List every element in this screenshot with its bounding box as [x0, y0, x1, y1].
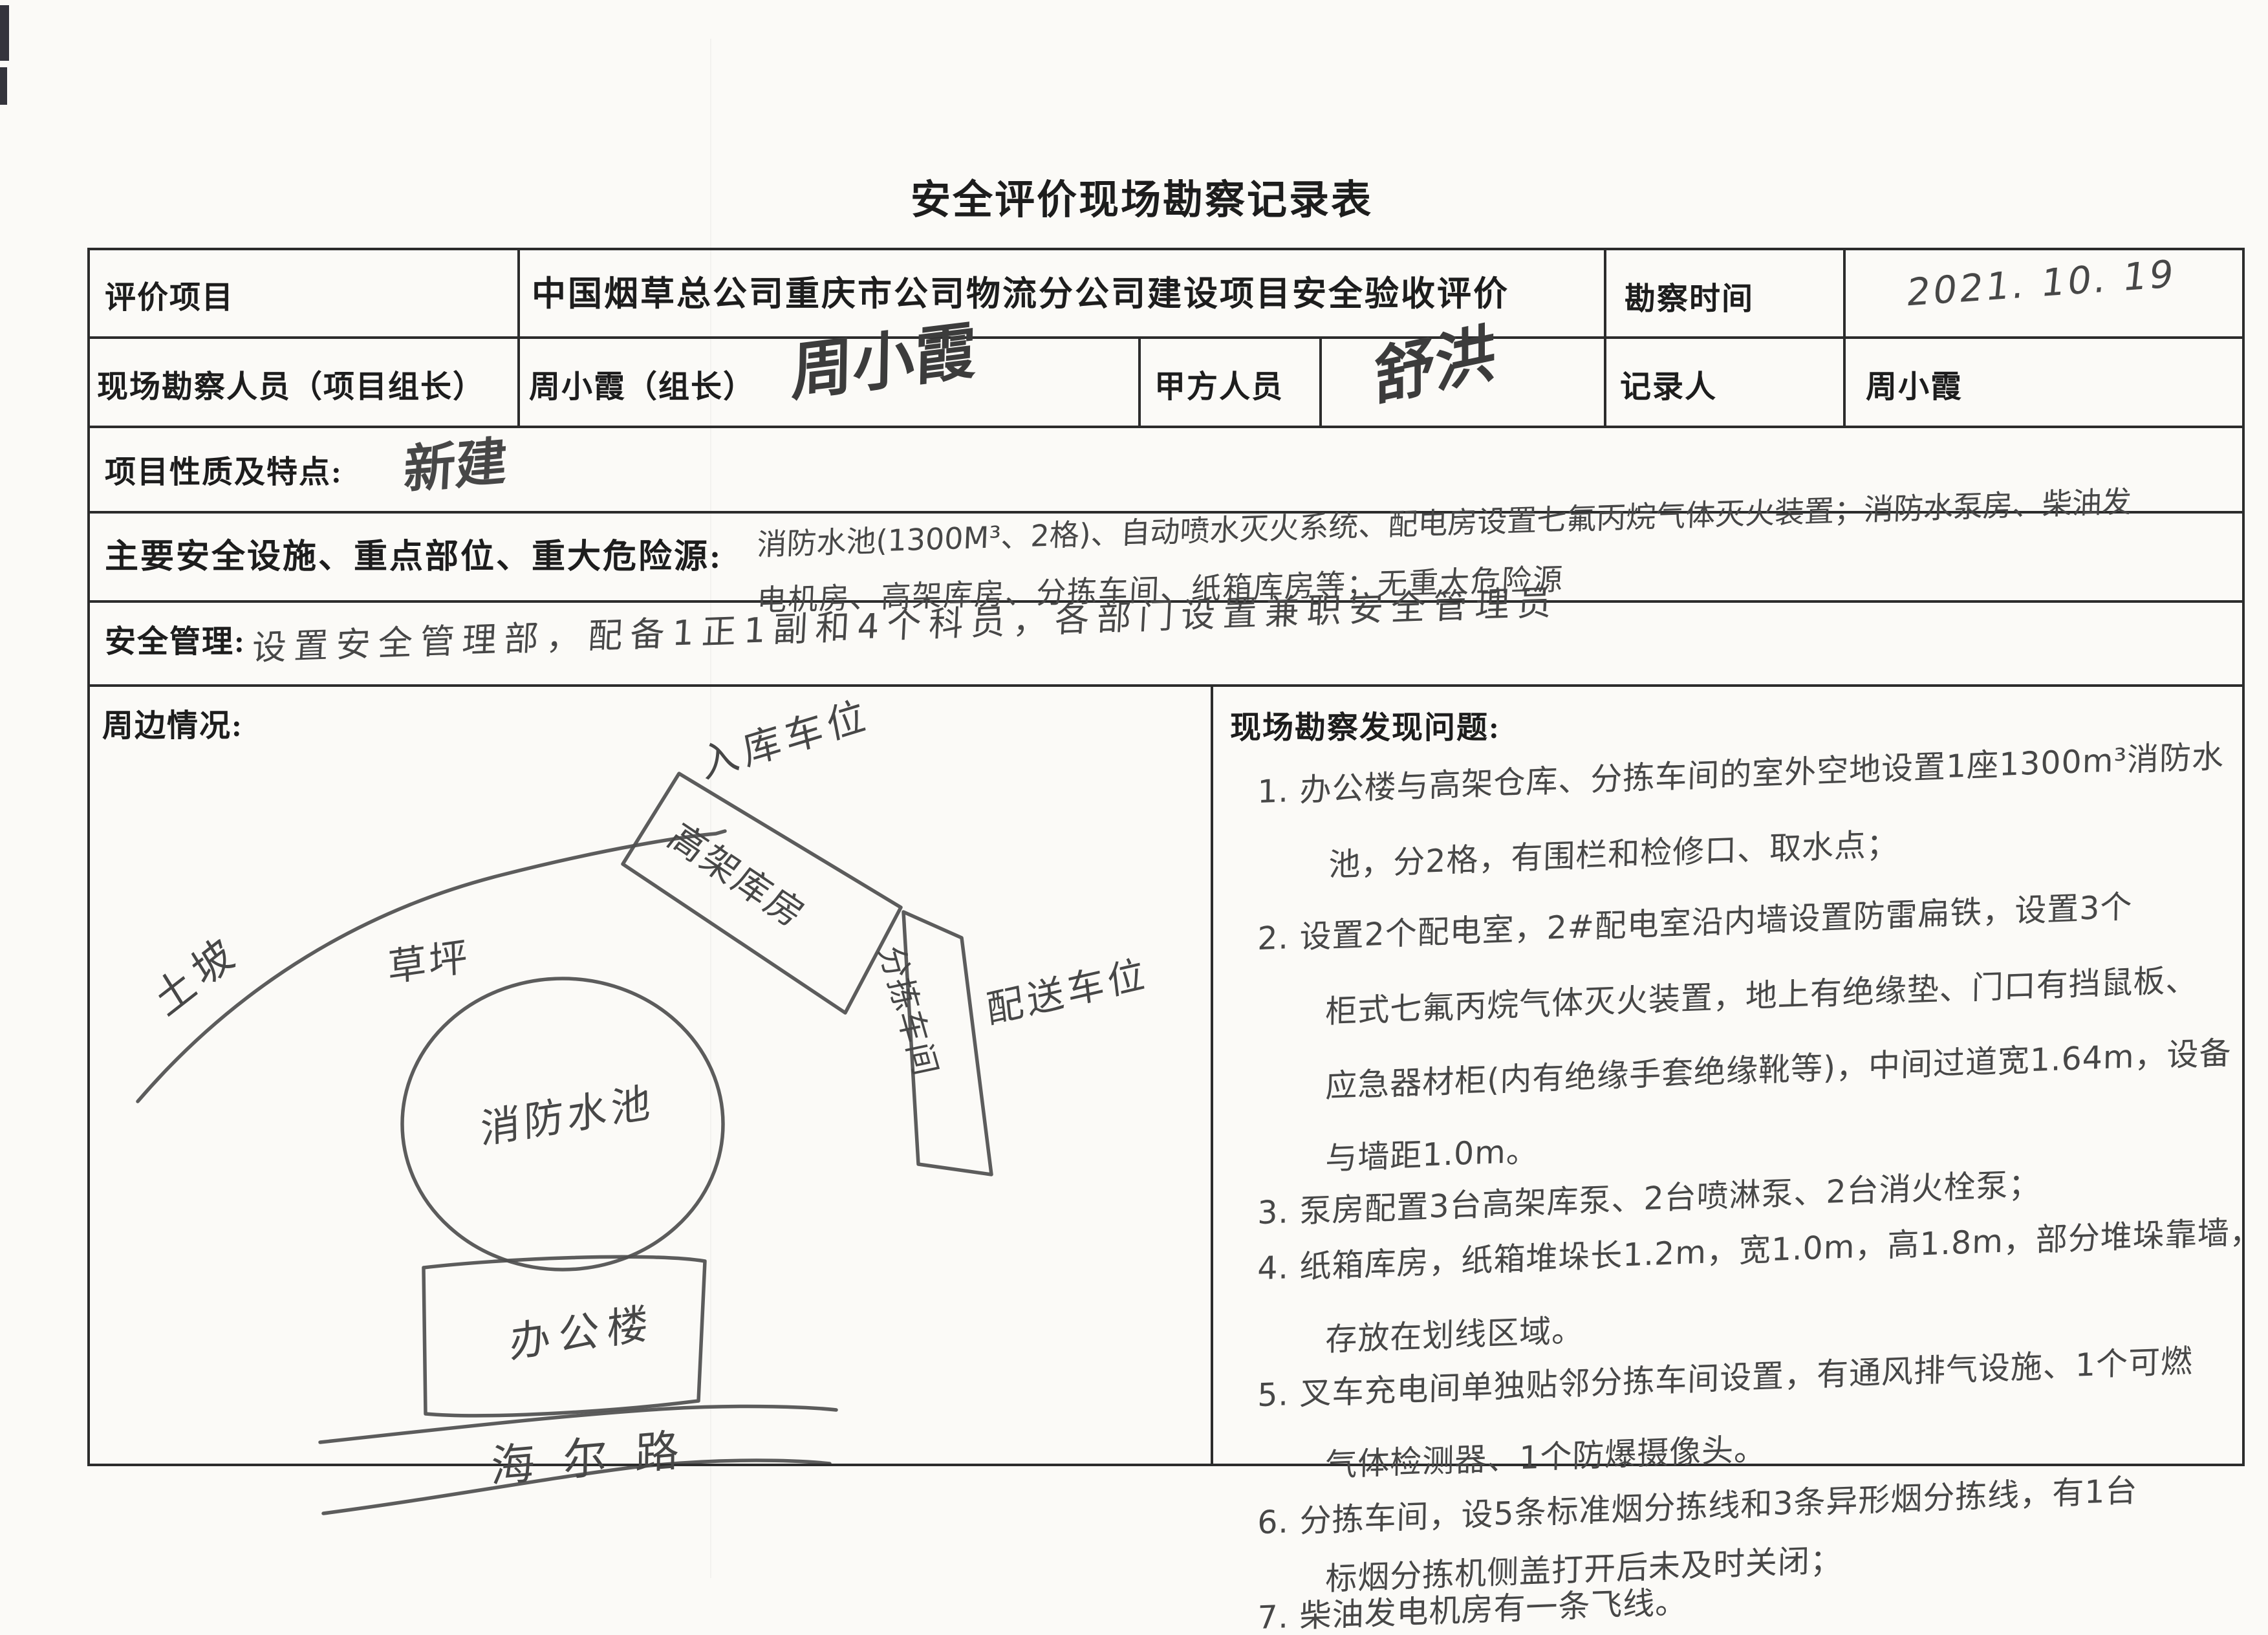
- sketch-label-lawn: 草坪: [387, 925, 471, 993]
- surroundings-label: 周边情况:: [102, 700, 243, 745]
- table-border: [87, 684, 2244, 687]
- finding-line: 与墙距1.0m。: [1325, 1125, 1539, 1179]
- finding-line: 7. 柴油发电机房有一条飞线。: [1257, 1577, 1688, 1635]
- table-border: [87, 248, 90, 1466]
- recorder-label: 记录人: [1620, 361, 1717, 406]
- party-a-signature: 舒洪: [1374, 301, 1496, 418]
- finding-line: 存放在划线区域。: [1325, 1305, 1584, 1360]
- facilities-handwritten-line1: 消防水池(1300M³、2格)、自动喷水灭火系统、配电房设置七氟丙烷气体灭火装置…: [756, 478, 2132, 564]
- project-label: 评价项目: [105, 272, 234, 317]
- table-border: [1211, 684, 1213, 1464]
- project-nature-handwritten: 新建: [402, 419, 510, 504]
- table-border: [87, 248, 2244, 250]
- findings-label: 现场勘察发现问题:: [1230, 702, 1500, 747]
- party-a-label: 甲方人员: [1154, 361, 1284, 406]
- scan-edge-mark: [0, 5, 9, 61]
- table-border: [87, 1464, 2244, 1466]
- scanned-document-page: 安全评价现场勘察记录表 评价项目 中国烟草总公司重庆市公司物流分公司建设项目安全…: [0, 0, 2268, 1635]
- finding-line: 柜式七氟丙烷气体灭火装置，地上有绝缘垫、门口有挡鼠板、: [1325, 955, 2198, 1033]
- table-border: [1843, 248, 1846, 426]
- scan-edge-mark: [0, 67, 7, 105]
- page-title: 安全评价现场勘察记录表: [911, 167, 1373, 225]
- facilities-label: 主要安全设施、重点部位、重大危险源:: [105, 529, 722, 578]
- table-border: [2242, 248, 2245, 1466]
- safety-management-label: 安全管理:: [105, 616, 246, 661]
- survey-time-label: 勘察时间: [1625, 273, 1754, 318]
- finding-line: 2. 设置2个配电室，2#配电室沿内墙设置防雷扁铁，设置3个: [1257, 881, 2133, 959]
- surveyor-printed-name: 周小霞（组长）: [529, 361, 755, 406]
- surveyor-label: 现场勘察人员（项目组长）: [97, 361, 485, 406]
- finding-line: 应急器材柜(内有绝缘手套绝缘靴等)，中间过道宽1.64m，设备: [1325, 1028, 2232, 1107]
- project-nature-label: 项目性质及特点:: [105, 446, 343, 492]
- table-border: [517, 248, 520, 426]
- surveyor-signature: 周小霞: [791, 299, 977, 413]
- table-border: [1319, 336, 1322, 426]
- recorder-value: 周小霞: [1866, 361, 1963, 406]
- finding-line: 池，分2格，有围栏和检修口、取水点；: [1328, 819, 1899, 885]
- project-value: 中国烟草总公司重庆市公司物流分公司建设项目安全验收评价: [532, 266, 1509, 316]
- table-border: [1138, 336, 1141, 426]
- table-border: [87, 336, 2244, 339]
- table-border: [1604, 248, 1606, 426]
- survey-time-handwritten: 2021. 10. 19: [1905, 252, 2178, 315]
- finding-line: 气体检测器、1个防爆摄像头。: [1325, 1424, 1767, 1486]
